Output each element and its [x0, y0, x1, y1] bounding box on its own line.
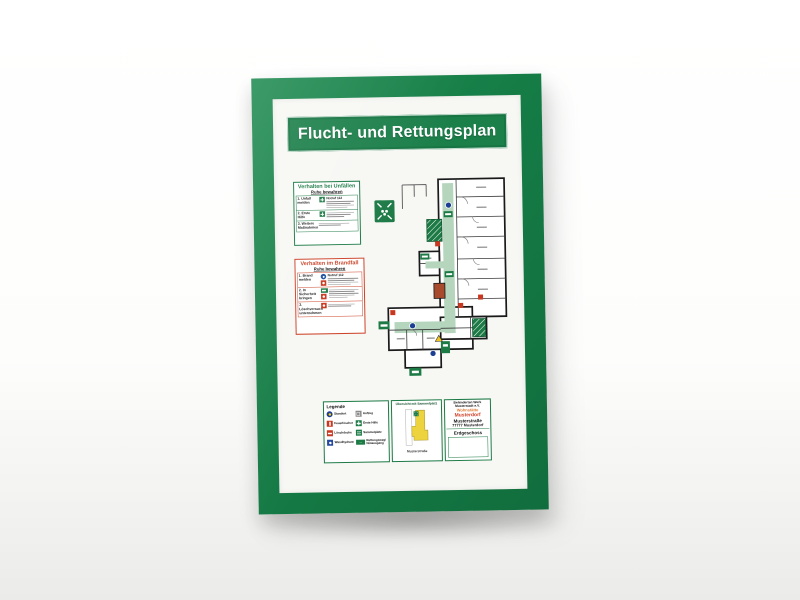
product-photo: Flucht- und Rettungsplan Verhalten bei U…: [0, 0, 800, 600]
legend-item-feuerloescher: Feuerlöscher: [327, 420, 354, 427]
plan-title: Flucht- und Rettungsplan: [298, 122, 497, 143]
overview-title: Übersicht mit Sammelplatz: [392, 402, 440, 406]
legend-item-sammelplatz: Sammelplatz: [356, 429, 386, 437]
fire-row-2: 2. In Sicherheit bringen: [298, 286, 362, 302]
postal-city: 77777 Musterdorf: [446, 423, 489, 428]
accident-instructions-box: Verhalten bei Unfällen Ruhe bewahren 1. …: [293, 181, 361, 246]
exterior-stairs: [402, 185, 426, 209]
legend-title: Legende: [326, 403, 387, 409]
empty-field: [448, 437, 488, 458]
elevator-icon: [355, 411, 361, 417]
highlighted-room: [434, 283, 445, 298]
floor-label: Erdgeschoss: [446, 430, 489, 437]
legend-item-erste-hilfe: Erste Hilfe: [356, 419, 386, 427]
legend-item-standort: Standort: [327, 410, 354, 417]
floor-plan: [372, 174, 524, 389]
legend-item-aufzug: Aufzug: [355, 410, 385, 418]
escape-route-icon: →: [356, 440, 365, 445]
fire-row-3: 3. Löschversuch unternehmen: [298, 301, 362, 317]
fire-phone-icon: [321, 280, 327, 286]
exit-sign-icon: [321, 288, 328, 293]
staircase-lower: [472, 319, 485, 337]
emergency-call-icon: [319, 197, 325, 203]
wall-hydrant-icon: [327, 440, 333, 446]
legend-item-loeschdecke: Löschdecke: [327, 429, 354, 436]
plan-title-bar: Flucht- und Rettungsplan: [287, 113, 508, 152]
accident-row-1: 1. Unfall melden Notruf 112: [296, 195, 357, 210]
legend-item-rettungsweg: → Rettungsweg/ Notausgang: [356, 438, 386, 446]
no-elevator-icon: [321, 294, 327, 300]
first-aid-icon: [356, 420, 362, 426]
fire-instructions-box: Verhalten im Brandfall Ruhe bewahren 1. …: [294, 258, 365, 335]
accident-row-3: 3. Weitere Maßnahmen: [297, 220, 358, 232]
assembly-point-icon: [356, 430, 362, 436]
overview-caption: Musterstraße: [393, 449, 441, 453]
fire-extinguisher-icon: [327, 421, 333, 427]
staircase-upper: [427, 219, 442, 241]
assembly-point-icon: [374, 200, 394, 222]
overview-map: [398, 407, 435, 450]
fire-row-1: 1. Brand melden Notruf 112: [298, 272, 362, 287]
first-aid-icon: [320, 211, 326, 217]
overview-assembly-icon: [414, 411, 419, 416]
building-info-box: Behinderten Werk Musterstadt e.V. Wohnst…: [444, 398, 492, 461]
escape-plan-document: Flucht- und Rettungsplan Verhalten bei U…: [273, 95, 528, 493]
legend-item-wandhydrant: Wandhydrant: [327, 439, 354, 446]
green-duraframe: Flucht- und Rettungsplan Verhalten bei U…: [251, 74, 549, 515]
overview-box: Übersicht mit Sammelplatz Musterstraße: [391, 399, 443, 462]
fire-blanket-icon: [327, 430, 333, 436]
legend-box: Legende Standort Aufzug Feuerlöscher: [323, 400, 390, 463]
fire-extinguisher-icon: [321, 303, 327, 309]
standort-icon: [327, 411, 333, 417]
alarm-button-icon: [321, 274, 327, 280]
